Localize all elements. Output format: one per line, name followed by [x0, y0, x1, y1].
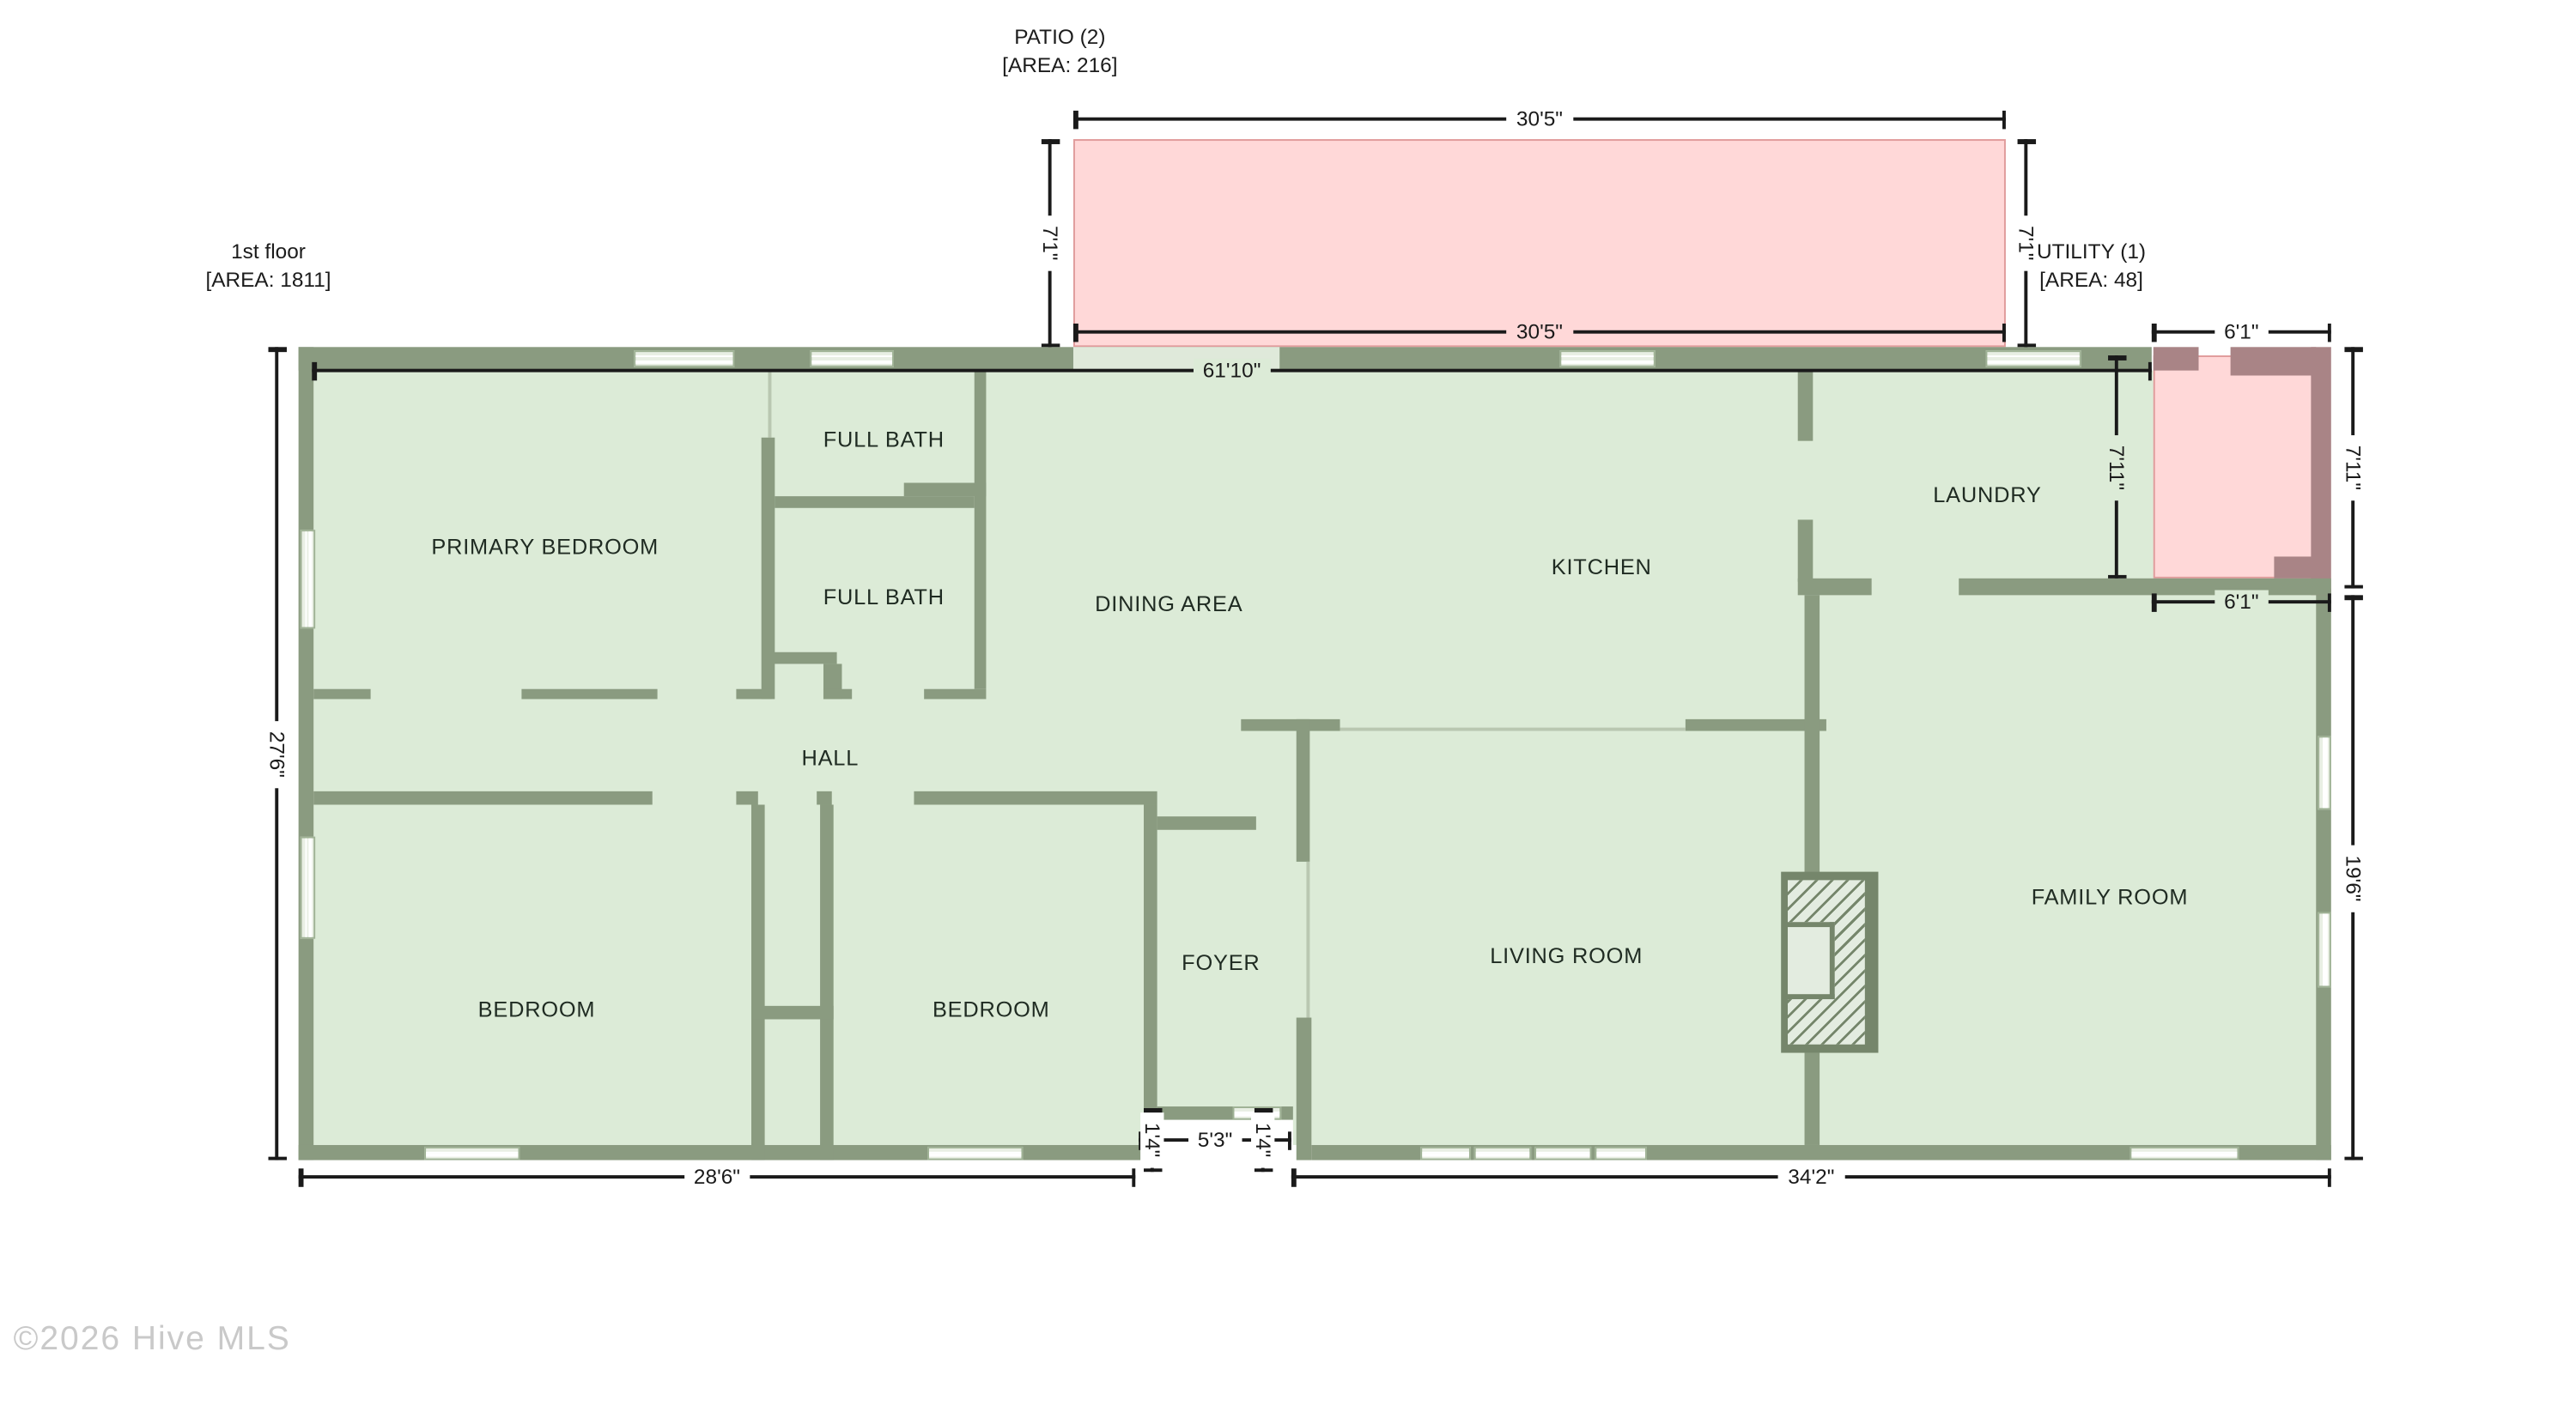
- watermark: ©2026 Hive MLS: [14, 1321, 291, 1360]
- fireplace-firebox: [1788, 922, 1835, 999]
- window: [1595, 1147, 1647, 1161]
- wall-hall-top: [313, 689, 370, 700]
- dimension-6-1-6: 6'1": [2152, 590, 2331, 613]
- utility-area: [2154, 355, 2316, 579]
- wall-bath-right: [975, 369, 987, 689]
- window: [2318, 736, 2331, 809]
- dimension-label: 34'2": [1778, 1165, 1845, 1188]
- dimension-label: 28'6": [683, 1165, 750, 1188]
- wall-closet-right: [820, 804, 834, 1160]
- dimension-19-6-9: 19'6": [2342, 595, 2365, 1160]
- dimension-label: 7'1": [2014, 215, 2038, 270]
- dimension-label: 1'4": [1251, 1112, 1274, 1167]
- patio-title-area: [AREA: 216]: [1002, 52, 1117, 79]
- window: [1420, 1147, 1471, 1161]
- room-label-foyer-9: FOYER: [1182, 949, 1260, 974]
- wall-living-family: [1805, 595, 1820, 873]
- utility-wall-bottom: [2274, 556, 2316, 578]
- wall-hall-bottom: [736, 791, 757, 805]
- dimension-30-5-0: 30'5": [1073, 107, 2006, 130]
- wall-hall-top: [736, 689, 771, 700]
- window: [2129, 1147, 2239, 1161]
- dimension-label: 6'1": [2214, 320, 2269, 343]
- wall-opening-line: [1340, 728, 1686, 731]
- dimension-7-11-7: 7'11": [2105, 355, 2128, 579]
- wall-foyer-right-lower: [1297, 1018, 1312, 1161]
- wall-foyer-stub: [1157, 816, 1256, 830]
- dimension-label: 27'6": [265, 720, 289, 787]
- wall-hall-bottom: [914, 791, 1157, 805]
- dimension-label: 7'1": [1038, 215, 1061, 270]
- patio-title: PATIO (2) [AREA: 216]: [1002, 23, 1117, 78]
- window: [301, 530, 316, 628]
- wall-living-family: [1805, 1053, 1820, 1145]
- dimension-label: 19'6": [2342, 845, 2365, 912]
- floor-plan-page: { "titles": { "patio": {"line1": "PATIO …: [0, 0, 2576, 1406]
- wall-bedroom2-right: [1144, 804, 1157, 1160]
- floor-plan-canvas: PATIO (2) [AREA: 216] 1st floor [AREA: 1…: [0, 0, 2576, 1373]
- dimension-label: 30'5": [1506, 107, 1573, 130]
- first-floor-title-name: 1st floor: [205, 238, 331, 265]
- dimension-7-1-2: 7'1": [1038, 139, 1061, 347]
- wall-closet-divider: [751, 1006, 834, 1020]
- dimension-label: 7'11": [2342, 435, 2365, 500]
- dimension-6-1-5: 6'1": [2152, 320, 2331, 343]
- window: [927, 1147, 1023, 1161]
- dimension-label: 30'5": [1506, 320, 1573, 343]
- wall-foyer-top: [1241, 719, 1340, 731]
- room-label-hall-6: HALL: [801, 745, 859, 770]
- window: [1534, 1147, 1591, 1161]
- room-label-family-room-11: FAMILY ROOM: [2032, 884, 2189, 909]
- room-label-bedroom-7: BEDROOM: [478, 997, 596, 1021]
- utility-title-name: UTILITY (1): [2037, 238, 2146, 265]
- window: [1474, 1147, 1531, 1161]
- dimension-label: 5'3": [1188, 1128, 1242, 1151]
- dimension-label: 1'4": [1140, 1112, 1163, 1167]
- dimension-30-5-1: 30'5": [1073, 320, 2006, 343]
- wall-laundry-bottom: [1798, 579, 1872, 596]
- room-label-full-bath-1: FULL BATH: [823, 427, 945, 451]
- dimension-1-4-13: 1'4": [1140, 1108, 1163, 1172]
- window: [424, 1147, 519, 1161]
- dimension-1-4-14: 1'4": [1251, 1108, 1274, 1172]
- room-label-kitchen-4: KITCHEN: [1552, 554, 1652, 579]
- first-floor-title: 1st floor [AREA: 1811]: [205, 238, 331, 293]
- wall-hall-top: [521, 689, 657, 700]
- first-floor-title-area: [AREA: 1811]: [205, 266, 331, 294]
- dimension-label: 7'11": [2105, 434, 2128, 500]
- wall-kitchen-laundry: [1798, 519, 1814, 581]
- dimension-61-10-4: 61'10": [312, 359, 2152, 382]
- window: [2318, 912, 2331, 987]
- wall-foyer-right-upper: [1297, 719, 1310, 862]
- utility-title: UTILITY (1) [AREA: 48]: [2037, 238, 2146, 293]
- wall-shower-h: [767, 652, 837, 664]
- room-label-full-bath-2: FULL BATH: [823, 585, 945, 609]
- window: [301, 837, 316, 939]
- utility-wall-top-left: [2154, 347, 2199, 370]
- wall-hall-bottom: [817, 791, 832, 805]
- patio-area: [1073, 139, 2006, 347]
- dimension-7-1-3: 7'1": [2014, 139, 2038, 347]
- dimension-label: 6'1": [2214, 590, 2269, 613]
- utility-wall-top-right: [2231, 347, 2317, 375]
- dimension-28-6-11: 28'6": [299, 1165, 1136, 1188]
- wall-closet-left: [751, 804, 765, 1160]
- wall-left: [299, 347, 314, 1160]
- wall-hall-top: [924, 689, 986, 700]
- utility-title-area: [AREA: 48]: [2037, 266, 2146, 294]
- dimension-7-11-8: 7'11": [2342, 347, 2365, 588]
- wall-bath-divider: [775, 496, 974, 508]
- room-label-primary-bedroom-0: PRIMARY BEDROOM: [431, 534, 659, 559]
- wall-hall-bottom: [313, 791, 653, 805]
- wall-hall-top: [823, 689, 852, 700]
- room-label-dining-area-3: DINING AREA: [1095, 591, 1242, 615]
- dimension-27-6-10: 27'6": [265, 347, 289, 1160]
- room-label-bedroom-8: BEDROOM: [933, 997, 1050, 1021]
- patio-title-name: PATIO (2): [1002, 23, 1117, 51]
- room-label-laundry-5: LAUNDRY: [1933, 482, 2041, 507]
- room-label-living-room-10: LIVING ROOM: [1490, 943, 1643, 968]
- wall-opening-line: [1306, 862, 1309, 1018]
- dimension-34-2-15: 34'2": [1291, 1165, 2331, 1188]
- wall-right: [2316, 589, 2331, 1161]
- dimension-label: 61'10": [1193, 359, 1271, 382]
